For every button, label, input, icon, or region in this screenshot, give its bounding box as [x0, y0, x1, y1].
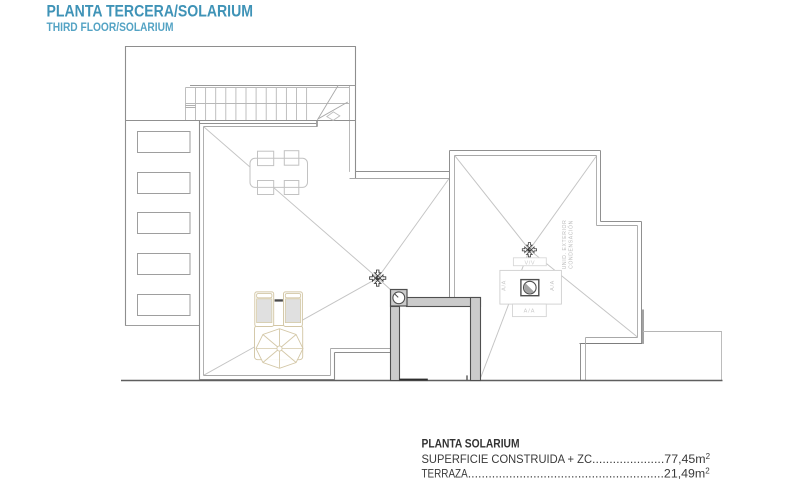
svg-text:CONDENSACIÓN: CONDENSACIÓN — [568, 220, 575, 269]
svg-text:PLANTA TERCERA/SOLARIUM: PLANTA TERCERA/SOLARIUM — [47, 2, 254, 20]
svg-text:PLANTA SOLARIUM: PLANTA SOLARIUM — [422, 437, 520, 451]
svg-text:A/A: A/A — [550, 280, 556, 291]
svg-text:SUPERFICIE CONSTRUIDA + ZC....: SUPERFICIE CONSTRUIDA + ZC..............… — [422, 452, 711, 466]
svg-text:A/A: A/A — [502, 280, 508, 291]
svg-text:THIRD FLOOR/SOLARIUM: THIRD FLOOR/SOLARIUM — [47, 20, 174, 34]
svg-text:V/V: V/V — [524, 261, 535, 267]
svg-text:A/A: A/A — [524, 309, 536, 315]
svg-text:UNID. EXTERIOR: UNID. EXTERIOR — [562, 220, 568, 270]
svg-text:TERRAZA.......................: TERRAZA.................................… — [422, 467, 711, 480]
